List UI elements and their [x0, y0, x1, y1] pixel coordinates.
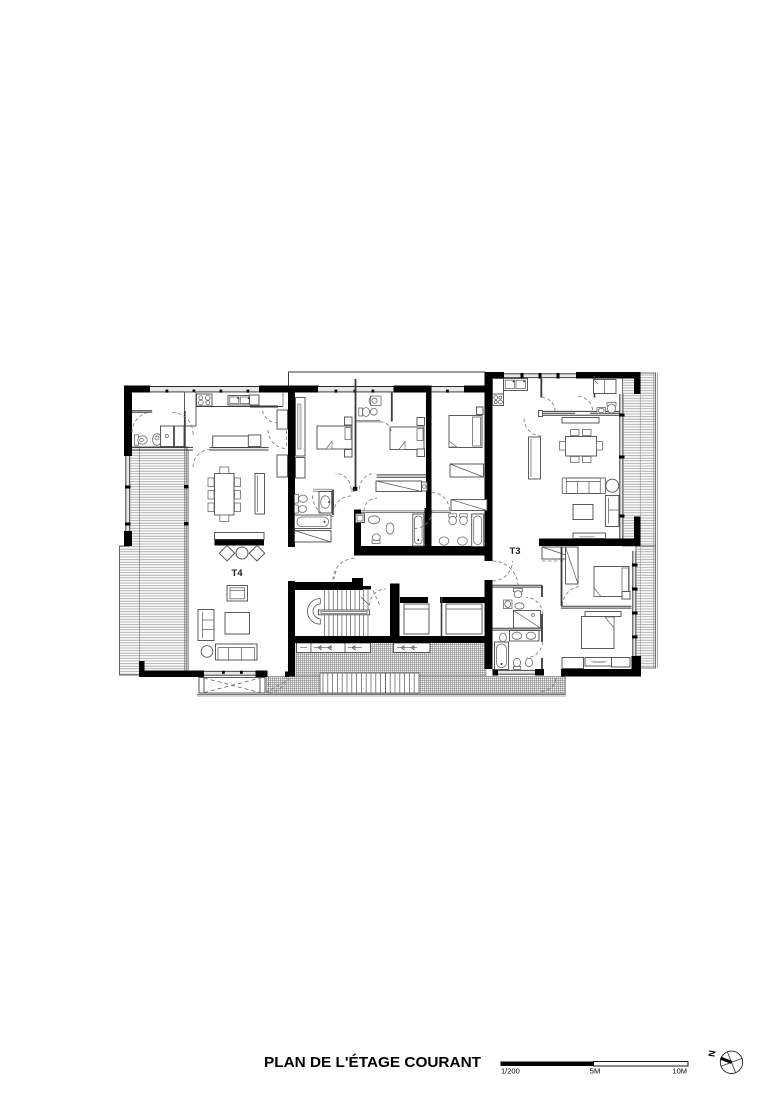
svg-text:T4: T4: [231, 568, 243, 579]
svg-text:1/200: 1/200: [501, 1067, 520, 1076]
svg-text:10M: 10M: [672, 1067, 687, 1076]
svg-text:5M: 5M: [590, 1067, 600, 1076]
svg-text:T3: T3: [509, 546, 520, 557]
svg-text:PLAN DE L'ÉTAGE COURANT: PLAN DE L'ÉTAGE COURANT: [264, 1054, 481, 1071]
